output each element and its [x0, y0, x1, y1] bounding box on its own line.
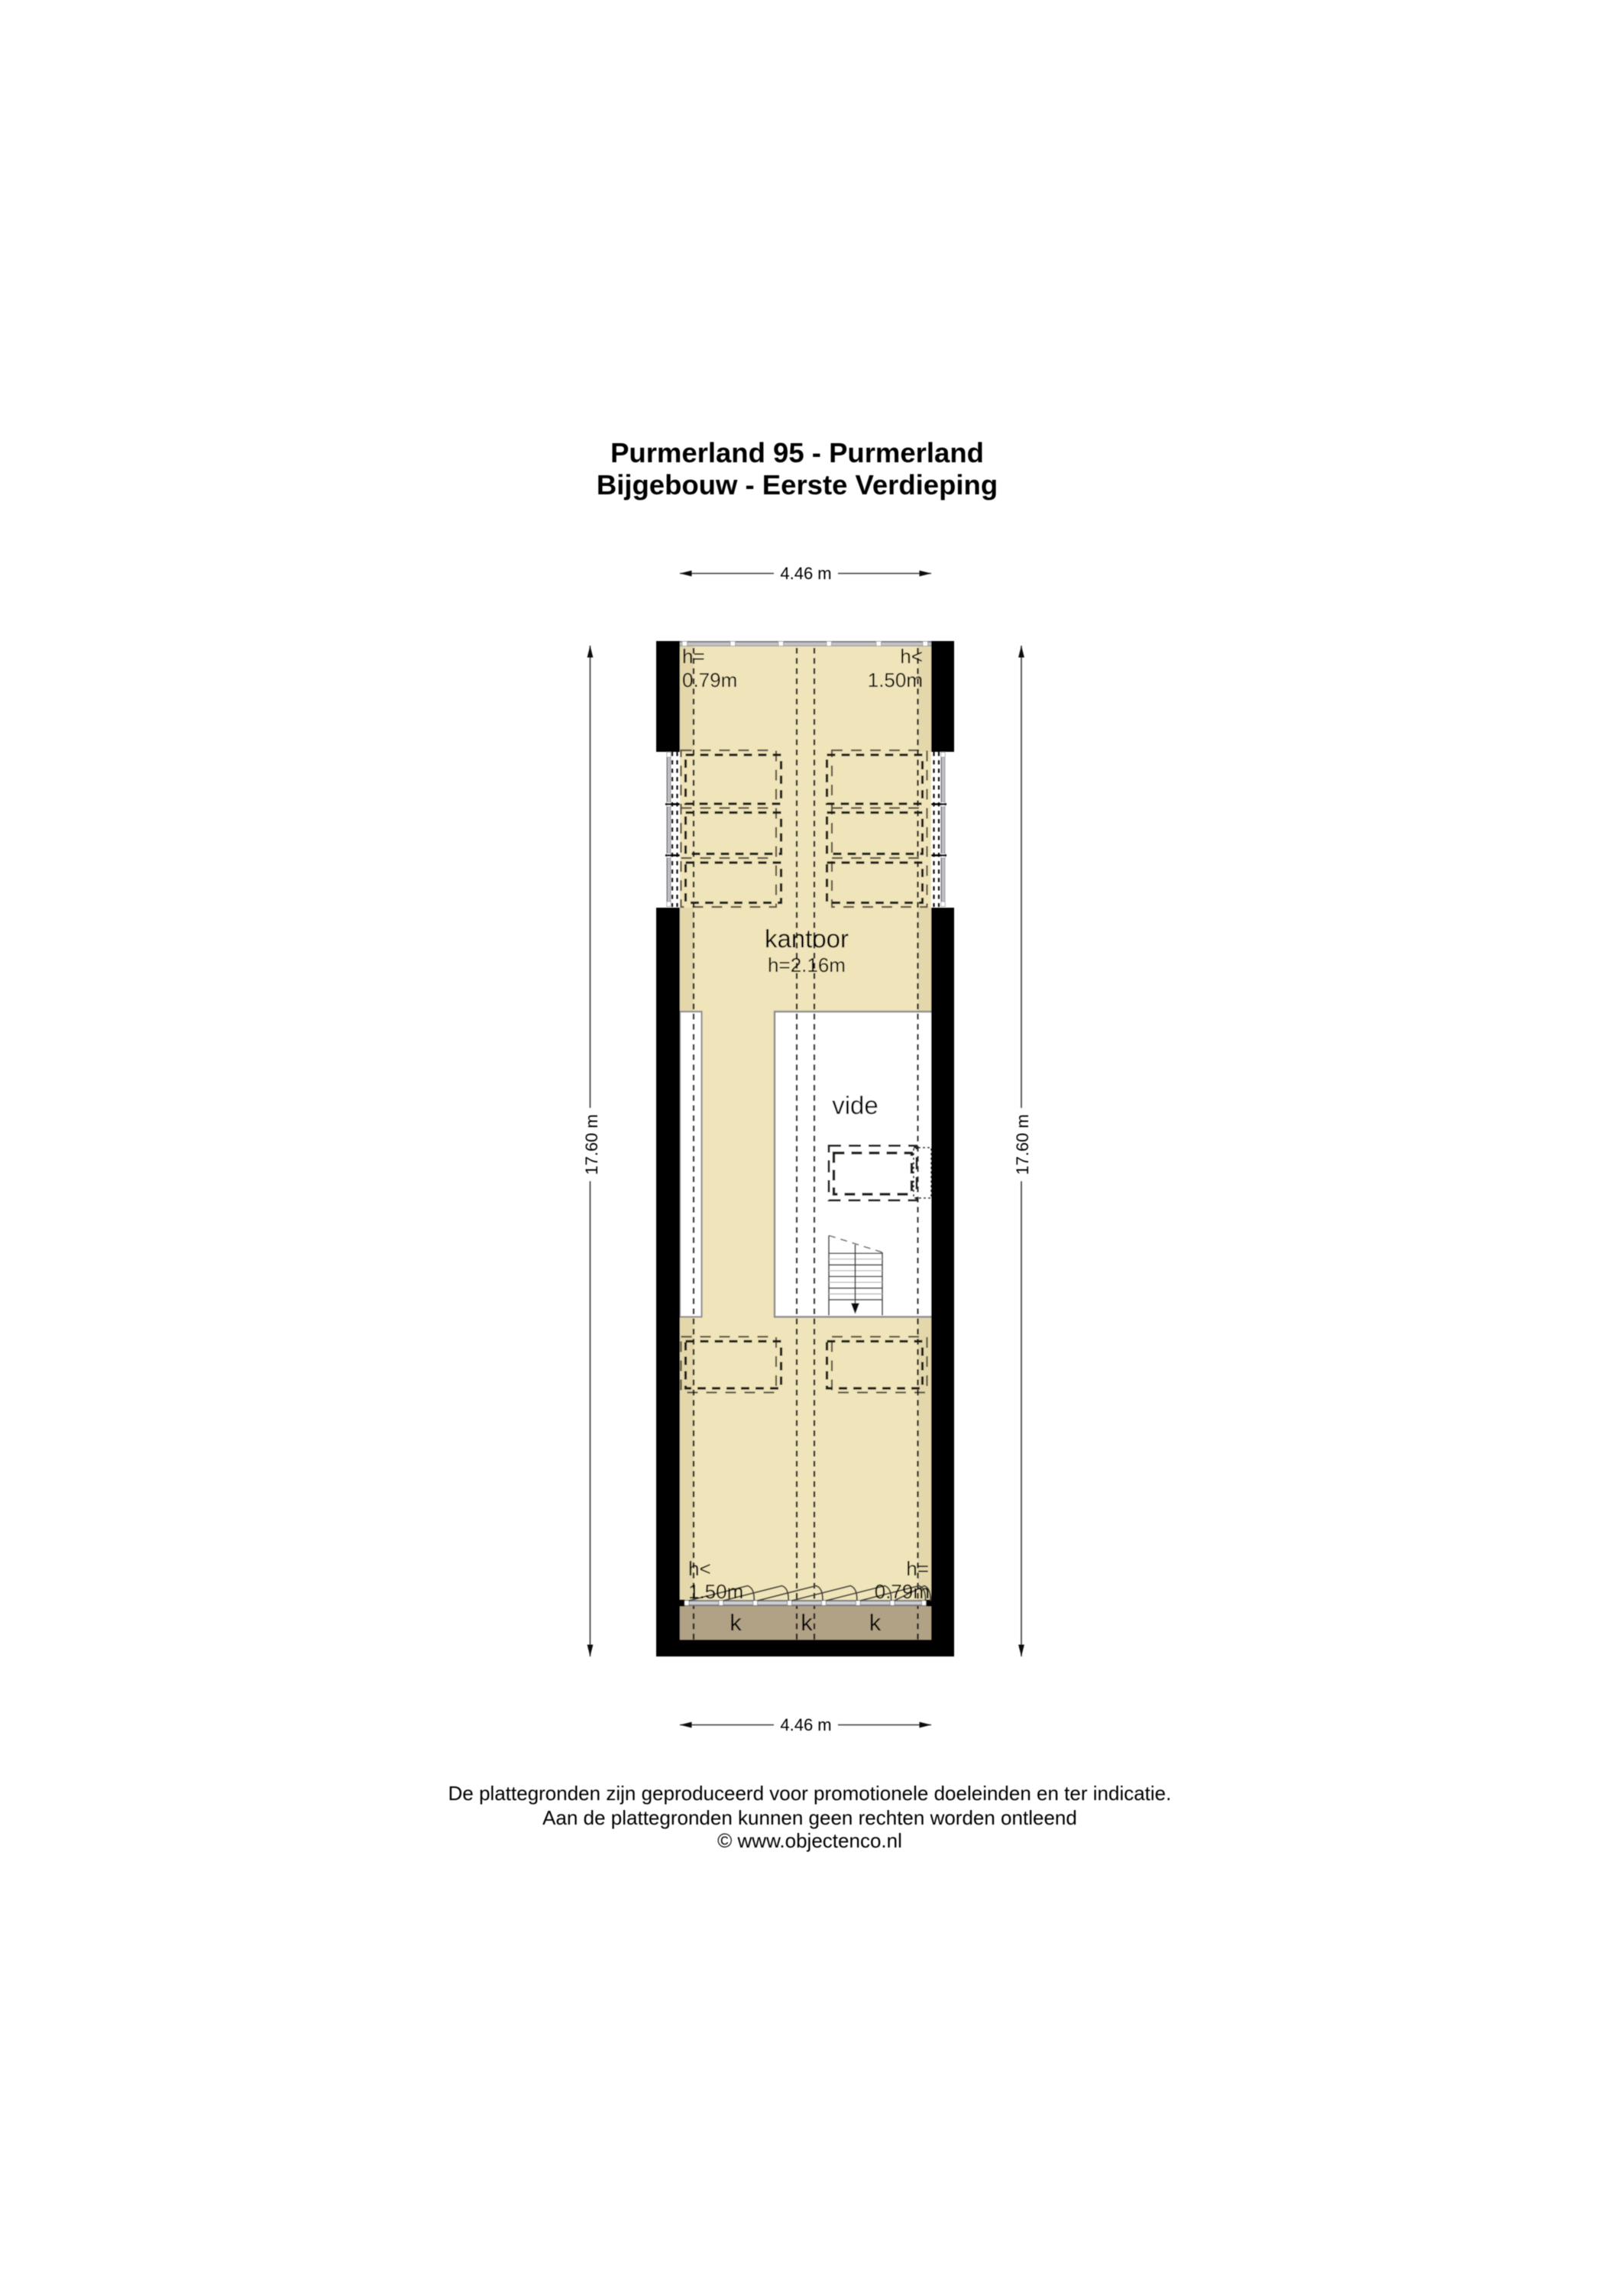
- svg-text:h=: h=: [682, 645, 705, 668]
- svg-text:k: k: [730, 1609, 742, 1636]
- svg-text:Bijgebouw - Eerste Verdieping: Bijgebouw - Eerste Verdieping: [597, 469, 998, 500]
- svg-text:kantoor: kantoor: [765, 925, 849, 953]
- svg-text:17.60 m: 17.60 m: [582, 1114, 601, 1175]
- svg-text:vide: vide: [832, 1091, 878, 1119]
- svg-text:Aan de plattegronden kunnen ge: Aan de plattegronden kunnen geen rechten…: [542, 1806, 1077, 1829]
- svg-text:0.79m: 0.79m: [682, 669, 737, 691]
- svg-text:17.60 m: 17.60 m: [1013, 1114, 1032, 1175]
- svg-text:h<: h<: [900, 645, 923, 668]
- svg-text:h<: h<: [688, 1557, 711, 1580]
- svg-text:h=: h=: [906, 1557, 929, 1580]
- svg-text:© www.objectenco.nl: © www.objectenco.nl: [717, 1829, 902, 1852]
- svg-text:1.50m: 1.50m: [688, 1580, 743, 1603]
- svg-text:0.79m: 0.79m: [875, 1580, 930, 1603]
- svg-text:4.46 m: 4.46 m: [780, 1715, 831, 1734]
- svg-text:h=2.16m: h=2.16m: [768, 954, 846, 976]
- svg-text:1.50m: 1.50m: [868, 669, 923, 691]
- svg-text:k: k: [869, 1609, 882, 1636]
- svg-text:k: k: [801, 1609, 813, 1636]
- svg-text:De plattegronden zijn geproduc: De plattegronden zijn geproduceerd voor …: [448, 1782, 1172, 1805]
- svg-text:4.46 m: 4.46 m: [780, 564, 831, 583]
- svg-text:Purmerland 95 - Purmerland: Purmerland 95 - Purmerland: [610, 437, 984, 468]
